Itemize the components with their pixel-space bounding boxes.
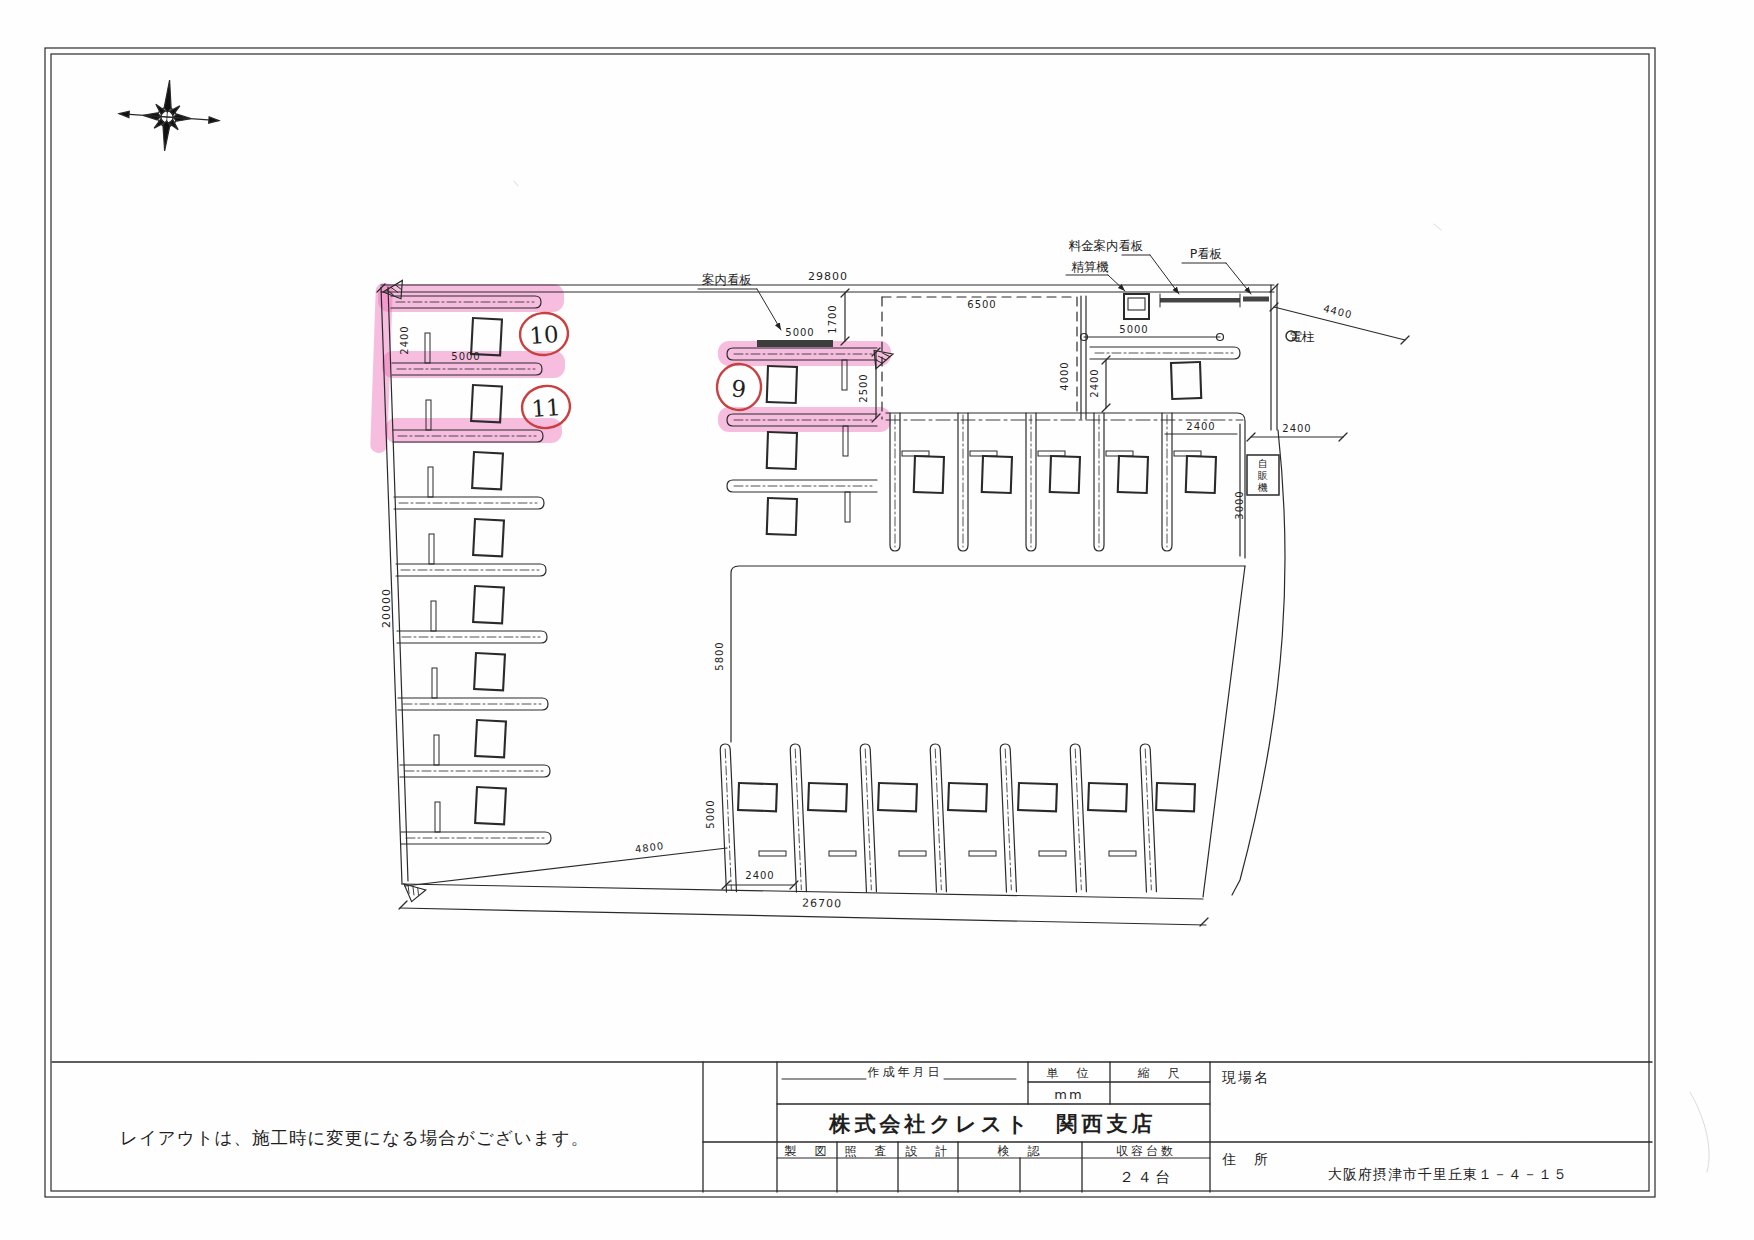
dim-site-top: 29800 (808, 270, 848, 283)
unit-label: 単 位 (1047, 1066, 1092, 1080)
dim-bottom-aisle: 4800 (634, 840, 665, 855)
guide-sign-bar (757, 340, 833, 347)
dim-mid-aisle: 5800 (714, 641, 725, 670)
south-stall-dividers (720, 744, 1156, 892)
unit-value: mm (1054, 1087, 1083, 1102)
space-number-9: 9 (730, 375, 747, 402)
dim-stall-width-east: 2400 (1089, 368, 1100, 397)
bottom-aisle-dim-line (405, 848, 727, 886)
vending-label-char3: 機 (1257, 482, 1268, 493)
dim-site-bottom: 26700 (802, 897, 842, 911)
page-border-outer (45, 48, 1655, 1197)
dim-bay-depth: 2500 (858, 373, 869, 402)
fee-sign-label: 料金案内看板 (1069, 238, 1144, 253)
southeast-edge (1203, 566, 1245, 897)
vending-label-char1: 自 (1258, 458, 1268, 469)
dim-sign-offset: 1700 (827, 304, 838, 333)
utility-pole-label: 電柱 (1290, 329, 1316, 344)
center-stall-dividers (890, 413, 1172, 551)
dim-stall-width-right: 2400 (1282, 423, 1311, 434)
dim-gate-length: 5000 (1119, 324, 1148, 335)
entrance-dashed-area (882, 297, 1077, 419)
design-label: 設 計 (906, 1144, 951, 1158)
gate-line (1081, 334, 1224, 341)
fee-sign-leader (1150, 255, 1179, 294)
dim-stall-width-west: 2400 (399, 325, 410, 354)
p-sign-leader (1226, 263, 1251, 294)
title-block: 作成年月日 単 位 mm 縮 尺 株式会社クレスト 関西支店 製 図 照 査 設… (785, 1065, 1569, 1186)
dim-stall-length-south: 5000 (705, 799, 716, 828)
space-number-10: 10 (529, 321, 560, 349)
dim-stall-length-west: 5000 (451, 351, 480, 362)
address-label: 住 所 (1222, 1151, 1270, 1167)
highlight-marker-space9-bottom (718, 407, 891, 432)
linework (45, 48, 1709, 1197)
address-value: 大阪府摂津市千里丘東１－４－１５ (1328, 1166, 1568, 1182)
south-lock-plates (738, 783, 1195, 811)
mid-aisle-boundary (731, 566, 1245, 742)
west-stall-dividers (391, 296, 551, 844)
scan-artifacts (514, 181, 1709, 1172)
verify-label: 検 認 (998, 1144, 1043, 1158)
capacity-value: ２４台 (1119, 1168, 1173, 1186)
west-lock-plates (471, 318, 506, 824)
site-plan-drawing: 10 11 9 案内看板 料金案内看板 精算機 P看板 電柱 自 販 機 298… (0, 0, 1754, 1240)
site-name-label: 現場名 (1222, 1069, 1270, 1085)
dim-stall-width-center: 2400 (1186, 421, 1215, 432)
dim-entrance-width: 6500 (967, 299, 996, 310)
created-date-label: 作成年月日 (867, 1065, 943, 1079)
scale-label: 縮 尺 (1138, 1066, 1183, 1080)
pay-machine-label: 精算機 (1071, 259, 1109, 274)
east-block-boundary (886, 413, 1245, 558)
dim-road-offset: 4400 (1322, 303, 1353, 321)
vending-label-char2: 販 (1257, 470, 1268, 481)
center-lock-plates (914, 456, 1216, 493)
dim-site-left: 20000 (380, 588, 393, 628)
guide-sign-leader (757, 289, 781, 330)
review-label: 照 査 (845, 1144, 890, 1158)
scanned-drawing-page: 10 11 9 案内看板 料金案内看板 精算機 P看板 電柱 自 販 機 298… (0, 0, 1754, 1240)
p-sign-bar (1243, 297, 1269, 302)
drafting-label: 製 図 (785, 1144, 830, 1158)
dim-sign-length: 5000 (785, 327, 814, 338)
west-stub-posts (425, 333, 440, 832)
east-lock-plate (1171, 362, 1201, 399)
dim-stall-width-south: 2400 (745, 870, 774, 881)
dim-entrance-depth: 4000 (1059, 361, 1070, 390)
east-stall-divider (1090, 347, 1240, 359)
compass-rose-icon (117, 77, 222, 155)
fee-sign-bar (1160, 298, 1240, 303)
guide-sign-label: 案内看板 (702, 272, 752, 287)
space-number-11: 11 (531, 394, 562, 422)
page-border-inner (51, 54, 1649, 1191)
middle-lock-plates (767, 366, 797, 535)
pay-machine-leader (1108, 275, 1125, 291)
capacity-label: 収容台数 (1116, 1144, 1176, 1158)
p-sign-label: P看板 (1190, 246, 1223, 261)
middle-stub-posts (842, 360, 850, 522)
layout-disclaimer-note: レイアウトは、施工時に変更になる場合がございます。 (120, 1128, 589, 1148)
pay-machine-box (1124, 294, 1149, 319)
company-name: 株式会社クレスト 関西支店 (829, 1112, 1157, 1136)
dim-vending-offset: 3000 (1234, 490, 1245, 519)
